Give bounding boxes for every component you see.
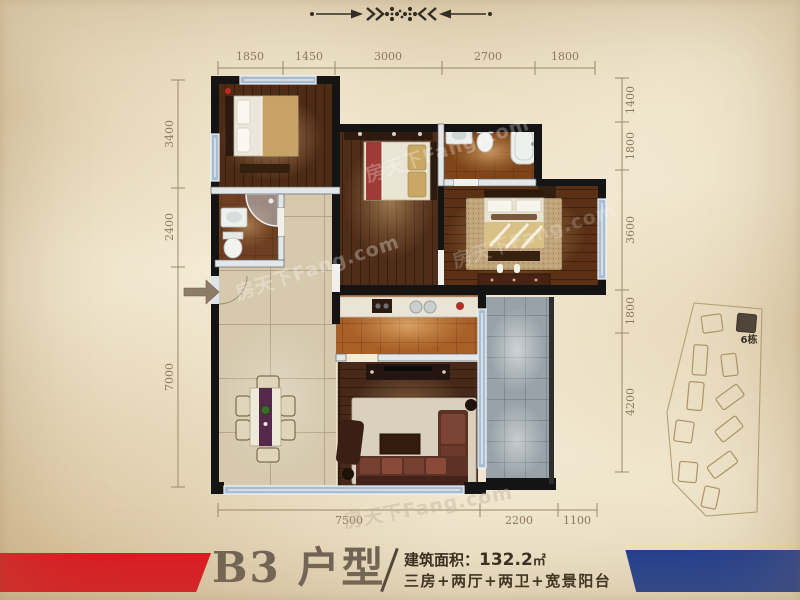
highlighted-building-6 — [736, 313, 756, 333]
layout-description: 三房+两厅+两卫+宽景阳台 — [404, 570, 611, 591]
area-unit: ㎡ — [533, 554, 546, 569]
dim-label: 3600 — [624, 216, 637, 244]
area-value: 132.2 — [479, 550, 533, 570]
dim-label: 1800 — [624, 297, 637, 325]
dimensions-left: 3400 2400 7000 — [163, 80, 185, 487]
dim-label: 2400 — [163, 213, 176, 241]
dimensions-top: 1850 1450 3000 2700 1800 — [218, 50, 595, 75]
dim-label: 1400 — [624, 86, 637, 114]
unit-type-title: B3 户型 — [212, 542, 382, 594]
dim-label: 1850 — [236, 50, 264, 63]
dim-label: 3400 — [163, 120, 176, 148]
dim-label: 3000 — [374, 50, 402, 63]
ornament-divider — [310, 7, 492, 21]
ornament-floret-right — [403, 7, 417, 21]
dim-label: 1450 — [295, 50, 323, 63]
area-label: 建筑面积： — [404, 551, 479, 569]
dim-label: 4200 — [624, 388, 637, 416]
dim-label: 1800 — [551, 50, 579, 63]
dim-label: 2700 — [474, 50, 502, 63]
floor-area-line: 建筑面积：132.2㎡ — [404, 549, 546, 570]
dim-label: 1800 — [624, 132, 637, 160]
dimensions-right: 1400 1800 3600 1800 4200 — [615, 78, 637, 472]
kitchen-counter — [340, 297, 478, 317]
footer-red-banner — [0, 553, 211, 592]
site-map: 6栋 — [667, 303, 762, 516]
building-label: 6栋 — [741, 333, 758, 346]
ornament-floret-left — [385, 7, 399, 21]
dim-label: 2200 — [505, 514, 533, 527]
floor-plan-canvas: 1850 1450 3000 2700 1800 3400 2400 7000 … — [0, 0, 800, 600]
dim-label: 1100 — [563, 514, 591, 527]
floorplan-page: { "plan": { "dims_top": ["1850","1450","… — [0, 0, 800, 600]
footer-blue-banner — [620, 550, 800, 592]
balcony-railing — [549, 297, 554, 484]
dim-label: 7000 — [163, 363, 176, 391]
